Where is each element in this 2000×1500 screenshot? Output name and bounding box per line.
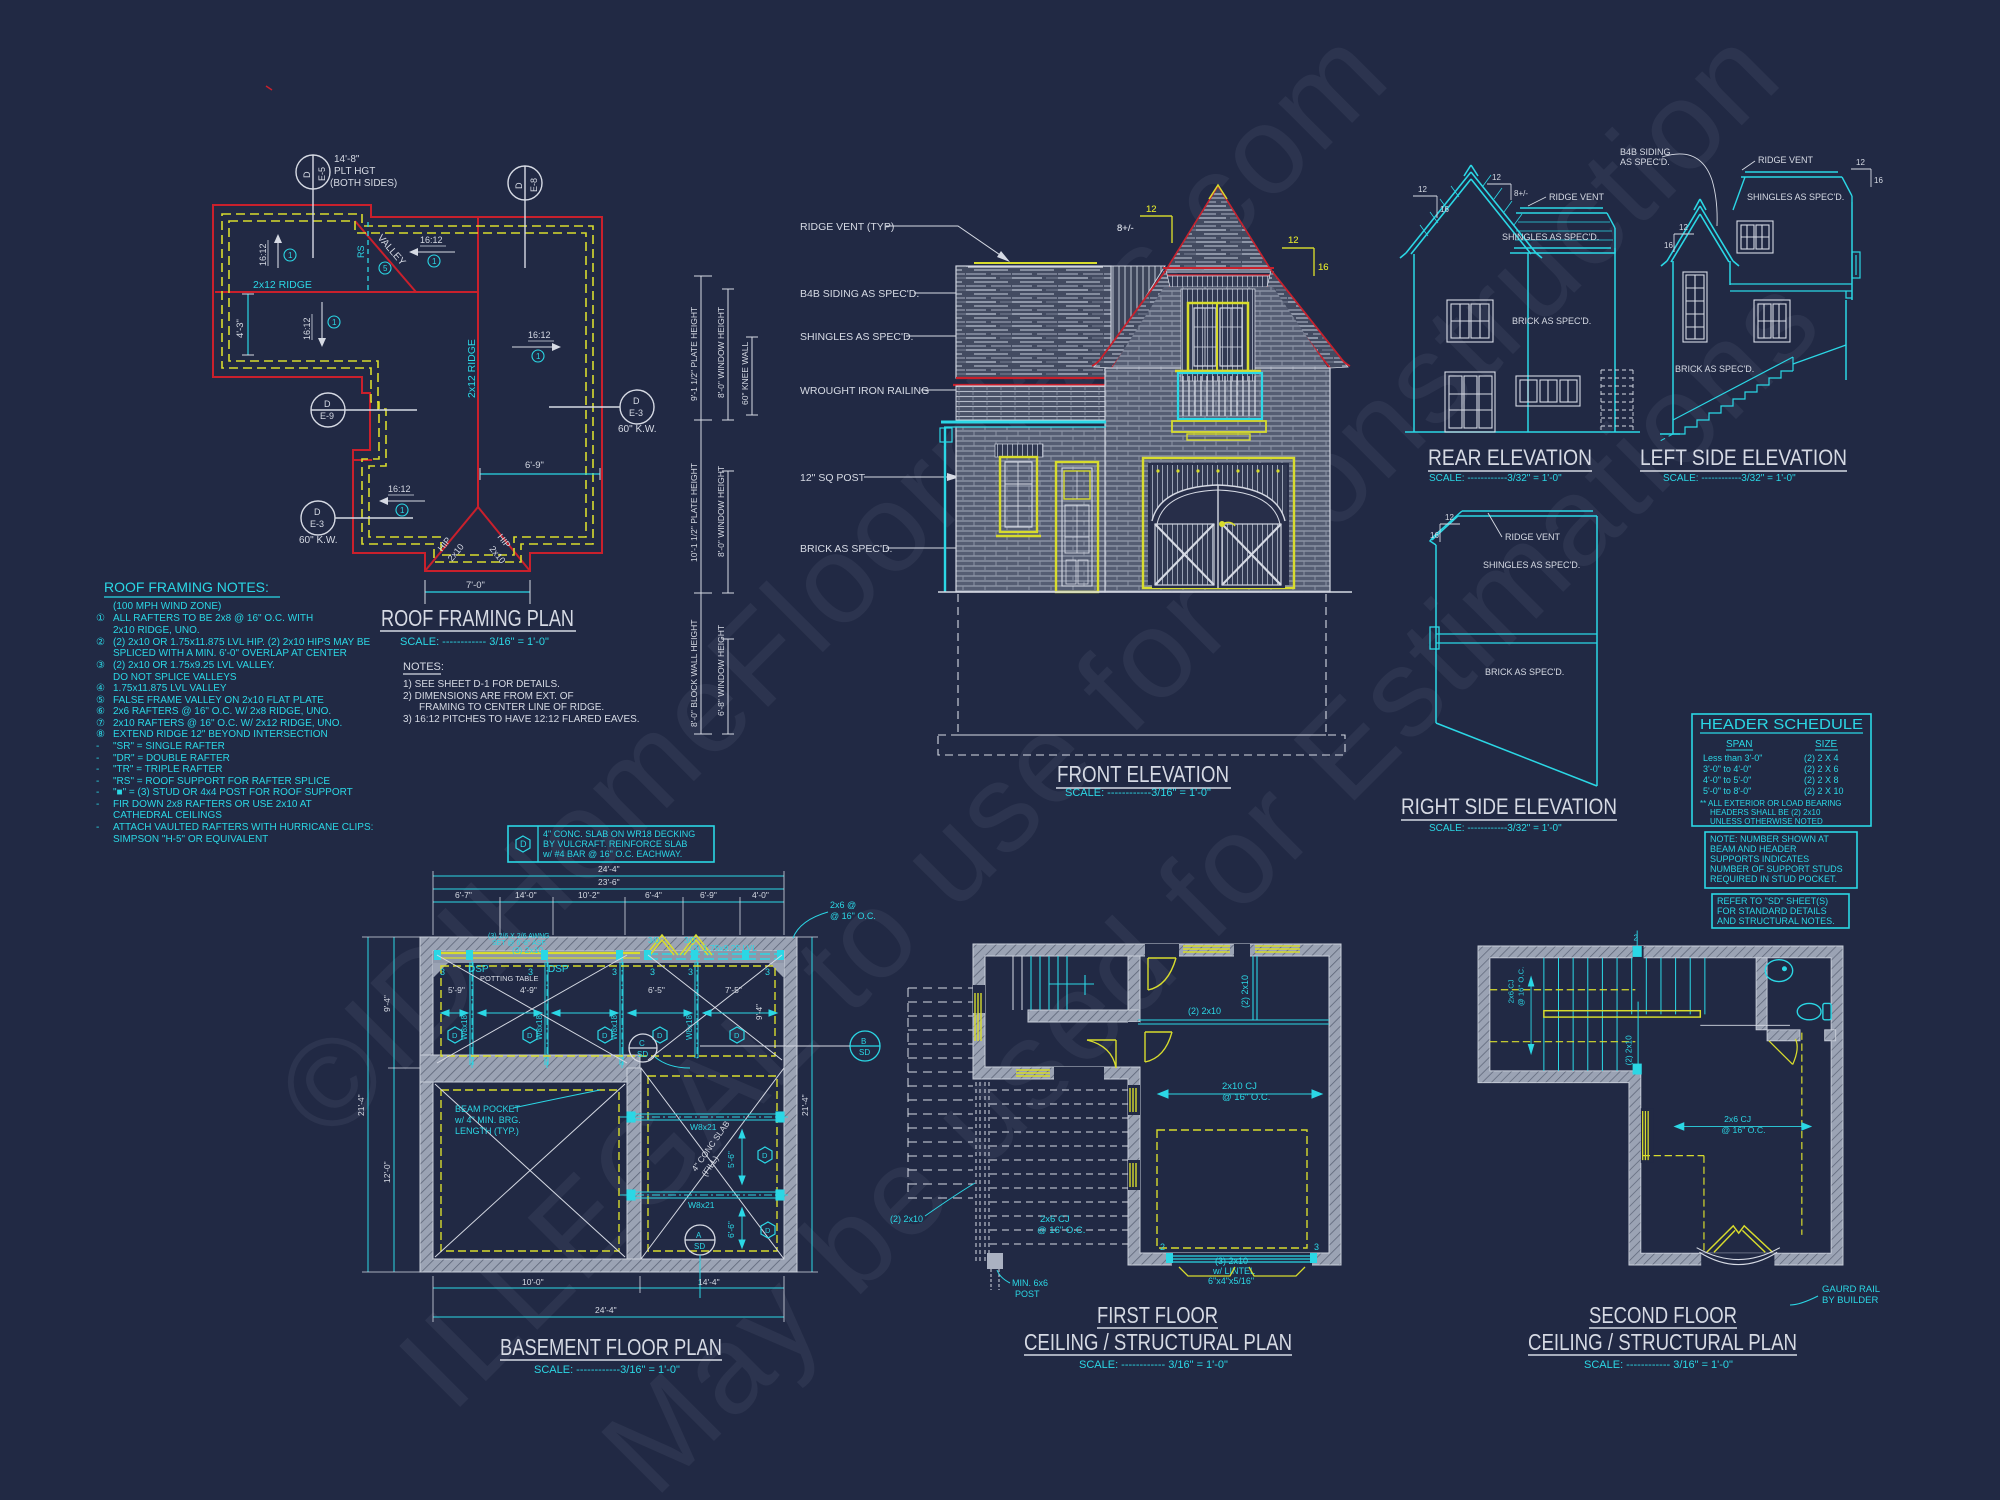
svg-text:D: D [657, 1031, 663, 1040]
svg-text:1.75x11.875 LVL VALLEY: 1.75x11.875 LVL VALLEY [113, 683, 227, 694]
svg-text:LEFT SIDE ELEVATION: LEFT SIDE ELEVATION [1640, 445, 1847, 470]
svg-text:SCALE: ------------ 3/16" = 1': SCALE: ------------ 3/16" = 1'-0" [1584, 1359, 1733, 1371]
svg-text:PLT HGT: PLT HGT [334, 166, 375, 177]
svg-text:SIMPSON "H-5" OR EQUIVALENT: SIMPSON "H-5" OR EQUIVALENT [113, 834, 268, 845]
svg-text:(2) 2x10 OR 1.75x11.875 LVL HI: (2) 2x10 OR 1.75x11.875 LVL HIP. (2) 2x1… [113, 637, 370, 648]
svg-text:8'-0" BLOCK WALL HEIGHT: 8'-0" BLOCK WALL HEIGHT [689, 620, 699, 727]
svg-text:2x6 CJ: 2x6 CJ [1724, 1114, 1751, 1124]
svg-text:60" KNEE WALL: 60" KNEE WALL [740, 342, 750, 405]
svg-text:5'-9": 5'-9" [448, 985, 465, 995]
svg-text:"TR" = TRIPLE RAFTER: "TR" = TRIPLE RAFTER [113, 764, 222, 775]
svg-text:3: 3 [440, 967, 445, 977]
svg-text:21'-4": 21'-4" [356, 1094, 366, 1116]
svg-text:3: 3 [650, 967, 655, 977]
svg-text:16:12: 16:12 [258, 243, 268, 266]
svg-text:(2) 2 X 6: (2) 2 X 6 [1804, 764, 1839, 774]
svg-text:-: - [96, 764, 99, 775]
svg-text:W8x18: W8x18 [610, 1015, 619, 1040]
svg-text:E-9: E-9 [320, 411, 334, 421]
svg-text:-: - [96, 741, 99, 752]
svg-text:2x12 RIDGE: 2x12 RIDGE [253, 279, 312, 291]
svg-text:(100 MPH WIND ZONE): (100 MPH WIND ZONE) [113, 601, 221, 612]
svg-text:B4B SIDING: B4B SIDING [1620, 147, 1671, 157]
svg-text:(3) 2/6 X 2/6 AWNG: (3) 2/6 X 2/6 AWNG [488, 933, 550, 940]
svg-text:SCALE: ------------3/16" = 1'-: SCALE: ------------3/16" = 1'-0" [1065, 787, 1211, 799]
svg-text:12: 12 [1418, 185, 1427, 194]
svg-text:AND STRUCTURAL NOTES.: AND STRUCTURAL NOTES. [1717, 916, 1835, 926]
svg-text:C: C [639, 1039, 645, 1048]
svg-text:DO NOT SPLICE VALLEYS: DO NOT SPLICE VALLEYS [113, 672, 237, 683]
svg-text:NOTES:: NOTES: [403, 661, 444, 673]
svg-text:8+/-: 8+/- [1514, 189, 1528, 198]
svg-text:HEADER SCHEDULE: HEADER SCHEDULE [1700, 717, 1863, 733]
svg-text:6'-9": 6'-9" [525, 460, 544, 471]
svg-text:B: B [861, 1037, 866, 1046]
svg-text:ALL RAFTERS TO BE 2x8 @ 16" O.: ALL RAFTERS TO BE 2x8 @ 16" O.C. WITH [113, 613, 313, 624]
svg-text:7'-0": 7'-0" [466, 580, 485, 591]
svg-text:SHINGLES AS SPEC'D.: SHINGLES AS SPEC'D. [1502, 232, 1599, 242]
svg-text:1) SEE SHEET D-1 FOR DETAILS.: 1) SEE SHEET D-1 FOR DETAILS. [403, 679, 560, 690]
svg-text:D: D [765, 1226, 771, 1235]
svg-text:SCALE: ------------ 3/16" = 1': SCALE: ------------ 3/16" = 1'-0" [400, 636, 549, 648]
svg-text:10'-1 1/2" PLATE HEIGHT: 10'-1 1/2" PLATE HEIGHT [689, 463, 699, 562]
svg-text:SUPPORTS INDICATES: SUPPORTS INDICATES [1710, 854, 1809, 864]
svg-text:6'-5": 6'-5" [648, 985, 665, 995]
svg-text:REAR ELEVATION: REAR ELEVATION [1428, 445, 1592, 470]
svg-text:BY BUILDER: BY BUILDER [1822, 1295, 1878, 1306]
svg-text:3: 3 [688, 967, 693, 977]
svg-text:(2) 2 X 4: (2) 2 X 4 [1804, 753, 1839, 763]
svg-text:3: 3 [1314, 1242, 1319, 1252]
svg-text:3) 16:12 PITCHES TO HAVE 12:1: 3) 16:12 PITCHES TO HAVE 12:12 FLARED EA… [403, 714, 640, 725]
svg-text:E-8: E-8 [529, 178, 539, 192]
svg-text:BY VULCRAFT. REINFORCE SLAB: BY VULCRAFT. REINFORCE SLAB [543, 839, 687, 849]
svg-text:ROOF FRAMING NOTES:: ROOF FRAMING NOTES: [104, 579, 269, 595]
svg-text:SCALE: ------------ 3/16" = 1': SCALE: ------------ 3/16" = 1'-0" [1079, 1359, 1228, 1371]
svg-text:w/ 4" MIN. BRG.: w/ 4" MIN. BRG. [454, 1115, 521, 1125]
svg-text:12: 12 [1856, 158, 1865, 167]
svg-text:LENGTH (TYP.): LENGTH (TYP.) [455, 1126, 519, 1136]
svg-text:SECOND FLOOR: SECOND FLOOR [1589, 1302, 1737, 1328]
svg-text:⑦: ⑦ [96, 718, 105, 729]
svg-text:-: - [96, 799, 99, 810]
svg-text:ATTACH VAULTED RAFTERS WITH HU: ATTACH VAULTED RAFTERS WITH HURRICANE CL… [113, 822, 373, 833]
svg-text:ROOF FRAMING PLAN: ROOF FRAMING PLAN [381, 605, 574, 631]
svg-text:RIGHT SIDE ELEVATION: RIGHT SIDE ELEVATION [1401, 794, 1617, 819]
svg-text:W8x21: W8x21 [688, 1200, 715, 1210]
svg-text:W8x18: W8x18 [535, 1015, 544, 1040]
svg-text:6'-4": 6'-4" [645, 890, 662, 900]
svg-text:24'-4": 24'-4" [598, 864, 620, 874]
svg-text:SPAN: SPAN [1726, 739, 1753, 750]
svg-text:SD: SD [637, 1050, 648, 1059]
svg-text:A: A [696, 1231, 702, 1240]
svg-text:REQUIRED IN STUD POCKET.: REQUIRED IN STUD POCKET. [1710, 874, 1837, 884]
svg-text:BEAM AND HEADER: BEAM AND HEADER [1710, 844, 1797, 854]
svg-text:RIDGE VENT: RIDGE VENT [1505, 532, 1561, 542]
svg-text:8+/-: 8+/- [1117, 223, 1134, 234]
svg-text:E-3: E-3 [629, 408, 643, 418]
svg-text:4'-3": 4'-3" [235, 319, 246, 338]
svg-text:6"x4"x5/16": 6"x4"x5/16" [1208, 1276, 1254, 1286]
svg-text:1: 1 [400, 506, 405, 515]
svg-text:FRONT ELEVATION: FRONT ELEVATION [1057, 761, 1229, 787]
svg-text:16:12: 16:12 [420, 235, 443, 245]
svg-text:24'-4": 24'-4" [595, 1305, 617, 1315]
svg-text:1: 1 [332, 318, 337, 327]
svg-text:BASEMENT FLOOR PLAN: BASEMENT FLOOR PLAN [500, 1334, 722, 1360]
svg-text:MIN. 6x6: MIN. 6x6 [1012, 1278, 1048, 1288]
svg-text:16: 16 [1440, 205, 1449, 214]
svg-text:16: 16 [1318, 262, 1329, 273]
svg-text:3: 3 [765, 967, 770, 977]
svg-text:SCALE: ------------3/32" = 1'-: SCALE: ------------3/32" = 1'-0" [1429, 473, 1562, 484]
svg-text:"RS" = ROOF SUPPORT FOR RAFT: "RS" = ROOF SUPPORT FOR RAFTER SPLICE [113, 776, 330, 787]
svg-text:EXTEND RIDGE 12" BEYOND INTERS: EXTEND RIDGE 12" BEYOND INTERSECTION [113, 729, 328, 740]
svg-text:B4B SIDING AS SPEC'D.: B4B SIDING AS SPEC'D. [800, 288, 919, 300]
svg-text:FIRST FLOOR: FIRST FLOOR [1097, 1302, 1218, 1328]
svg-text:5: 5 [383, 264, 388, 273]
svg-text:16:12: 16:12 [302, 317, 312, 340]
svg-text:2x6 CJ: 2x6 CJ [1507, 979, 1516, 1003]
svg-text:10'-2": 10'-2" [578, 890, 600, 900]
svg-text:10'-0": 10'-0" [522, 1277, 544, 1287]
svg-text:"DR" = DOUBLE RAFTER: "DR" = DOUBLE RAFTER [113, 753, 230, 764]
svg-text:BRICK AS SPEC'D.: BRICK AS SPEC'D. [1675, 364, 1754, 374]
svg-text:SIZE: SIZE [1815, 739, 1838, 750]
svg-text:(2) 2x10 OR 1.75x9.25 LVL VALL: (2) 2x10 OR 1.75x9.25 LVL VALLEY. [113, 660, 275, 671]
svg-text:SCALE: ------------3/16" = 1'-: SCALE: ------------3/16" = 1'-0" [534, 1364, 680, 1376]
svg-text:(2) 2x10: (2) 2x10 [1188, 1006, 1221, 1016]
svg-text:@ 16" O.C.: @ 16" O.C. [1517, 967, 1526, 1006]
svg-text:WROUGHT IRON RAILING: WROUGHT IRON RAILING [800, 385, 929, 397]
svg-text:9'-4": 9'-4" [382, 995, 392, 1012]
svg-text:(BOTH SIDES): (BOTH SIDES) [330, 178, 397, 189]
svg-text:FOR STANDARD DETAILS: FOR STANDARD DETAILS [1717, 906, 1827, 916]
svg-text:POTTING TABLE: POTTING TABLE [480, 974, 538, 983]
svg-text:E-3: E-3 [310, 519, 324, 529]
svg-text:-: - [96, 776, 99, 787]
svg-text:(2) 2 X 8: (2) 2 X 8 [1804, 775, 1839, 785]
svg-text:23'-6": 23'-6" [598, 877, 620, 887]
svg-text:9'-1 1/2" PLATE HEIGHT: 9'-1 1/2" PLATE HEIGHT [689, 307, 699, 401]
svg-text:2) DIMENSIONS ARE FROM EXT. O: 2) DIMENSIONS ARE FROM EXT. OF [403, 691, 574, 702]
svg-text:** ALL EXTERIOR OR LOAD BEARI: ** ALL EXTERIOR OR LOAD BEARING [1700, 799, 1842, 808]
svg-text:1: 1 [432, 257, 437, 266]
svg-text:POST: POST [1015, 1289, 1040, 1299]
svg-text:BRICK AS SPEC'D.: BRICK AS SPEC'D. [800, 543, 892, 555]
svg-text:HEADERS SHALL BE (2) 2x10: HEADERS SHALL BE (2) 2x10 [1710, 808, 1821, 817]
svg-text:D: D [324, 399, 331, 409]
svg-text:⑧: ⑧ [96, 729, 105, 740]
svg-text:D: D [314, 507, 321, 517]
svg-text:RS: RS [356, 245, 366, 258]
svg-text:6'-7": 6'-7" [455, 890, 472, 900]
svg-text:12: 12 [1679, 223, 1688, 232]
svg-text:5'-0" to 8'-0": 5'-0" to 8'-0" [1703, 786, 1751, 796]
svg-text:Less than 3'-0": Less than 3'-0" [1703, 753, 1762, 763]
svg-text:④: ④ [96, 683, 105, 694]
svg-text:D: D [452, 1031, 458, 1040]
svg-text:-: - [96, 753, 99, 764]
svg-text:16: 16 [1430, 531, 1439, 540]
svg-text:60" K.W.: 60" K.W. [618, 424, 657, 435]
svg-text:REFER TO "SD" SHEET(S): REFER TO "SD" SHEET(S) [1717, 896, 1828, 906]
svg-text:"SR" = SINGLE RAFTER: "SR" = SINGLE RAFTER [113, 741, 225, 752]
svg-text:3'-0" to 4'-0": 3'-0" to 4'-0" [1703, 764, 1751, 774]
svg-text:6'-9": 6'-9" [700, 890, 717, 900]
svg-text:2x6 RAFTERS @ 16" O.C. W/ 2x8: 2x6 RAFTERS @ 16" O.C. W/ 2x8 RIDGE, UNO… [113, 706, 331, 717]
svg-text:16:12: 16:12 [528, 330, 551, 340]
svg-text:(2) 2x10: (2) 2x10 [1625, 1035, 1634, 1065]
svg-text:DSP: DSP [548, 964, 569, 975]
svg-text:②: ② [96, 637, 105, 648]
svg-text:12: 12 [1146, 204, 1157, 215]
svg-text:E-5: E-5 [317, 167, 327, 181]
svg-text:(3) 2x10: (3) 2x10 [512, 945, 543, 955]
svg-text:-: - [96, 787, 99, 798]
svg-text:D: D [602, 1031, 608, 1040]
svg-text:SD: SD [859, 1048, 870, 1057]
svg-text:⑤: ⑤ [96, 695, 105, 706]
svg-text:14'-8": 14'-8" [334, 154, 360, 165]
svg-text:FALSE FRAME VALLEY ON 2x10 FLA: FALSE FRAME VALLEY ON 2x10 FLAT PLATE [113, 695, 324, 706]
svg-text:FRAMING TO CENTER LINE OF RIDG: FRAMING TO CENTER LINE OF RIDGE. [419, 702, 604, 713]
svg-text:(3) 1.75x9.25 LVL: (3) 1.75x9.25 LVL [690, 943, 757, 953]
svg-text:(3) 2x10: (3) 2x10 [1215, 1256, 1248, 1266]
svg-text:2x10 RIDGE, UNO.: 2x10 RIDGE, UNO. [113, 625, 200, 636]
svg-text:D: D [520, 839, 527, 849]
svg-text:CEILING / STRUCTURAL PLAN: CEILING / STRUCTURAL PLAN [1024, 1329, 1292, 1355]
svg-text:3: 3 [612, 967, 617, 977]
svg-text:2x10 CJ: 2x10 CJ [1222, 1081, 1257, 1092]
svg-text:14'-4": 14'-4" [698, 1277, 720, 1287]
svg-text:4'-9": 4'-9" [520, 985, 537, 995]
svg-text:AS SPEC'D.: AS SPEC'D. [1620, 157, 1670, 167]
svg-text:SHINGLES AS SPEC'D.: SHINGLES AS SPEC'D. [1747, 192, 1844, 202]
svg-text:6'-6": 6'-6" [726, 1221, 736, 1238]
svg-text:4'-0": 4'-0" [752, 890, 769, 900]
svg-text:SD: SD [694, 1242, 705, 1251]
svg-text:UNLESS OTHERWISE NOTED: UNLESS OTHERWISE NOTED [1710, 817, 1823, 826]
svg-text:1: 1 [536, 352, 541, 361]
svg-text:BRICK AS SPEC'D.: BRICK AS SPEC'D. [1485, 667, 1564, 677]
svg-text:16: 16 [1874, 176, 1883, 185]
svg-text:14'-0": 14'-0" [515, 890, 537, 900]
svg-text:12: 12 [1288, 235, 1299, 246]
svg-text:4'-0" to 5'-0": 4'-0" to 5'-0" [1703, 775, 1751, 785]
svg-text:2x6 @: 2x6 @ [830, 900, 856, 910]
svg-text:SHINGLES AS SPEC'D.: SHINGLES AS SPEC'D. [800, 331, 913, 343]
svg-text:⑥: ⑥ [96, 706, 105, 717]
svg-text:W8x21: W8x21 [690, 1122, 717, 1132]
svg-text:12: 12 [1492, 173, 1501, 182]
svg-text:1: 1 [288, 251, 293, 260]
svg-text:NOTE: NUMBER SHOWN AT: NOTE: NUMBER SHOWN AT [1710, 834, 1829, 844]
svg-text:"■" = (3) STUD OR 4x4 POST: "■" = (3) STUD OR 4x4 POST FOR ROOF SUPP… [113, 787, 353, 798]
svg-text:W8x18: W8x18 [460, 1015, 469, 1040]
svg-text:16:12: 16:12 [388, 484, 411, 494]
svg-text:RIDGE VENT: RIDGE VENT [1549, 192, 1605, 202]
svg-text:D: D [527, 1031, 533, 1040]
svg-text:(2) 2 X 10: (2) 2 X 10 [1804, 786, 1844, 796]
svg-text:8'-0" WINDOW HEIGHT: 8'-0" WINDOW HEIGHT [716, 466, 726, 557]
svg-text:12" SQ POST: 12" SQ POST [800, 472, 866, 484]
svg-text:2: 2 [1634, 934, 1639, 943]
svg-text:60" K.W.: 60" K.W. [299, 535, 338, 546]
svg-text:2x10 RAFTERS @ 16" O.C. W/ 2x1: 2x10 RAFTERS @ 16" O.C. W/ 2x12 RIDGE, U… [113, 718, 342, 729]
svg-text:SPLICED WITH A MIN. 6'-0" OVER: SPLICED WITH A MIN. 6'-0" OVERLAP AT CEN… [113, 648, 347, 659]
svg-text:D: D [302, 171, 312, 178]
svg-text:①: ① [96, 613, 105, 624]
svg-text:D: D [633, 396, 640, 406]
svg-text:16: 16 [1664, 241, 1673, 250]
svg-text:7'-5": 7'-5" [725, 985, 742, 995]
svg-text:(2) 2x10: (2) 2x10 [1240, 975, 1250, 1008]
svg-text:3/0: 3/0 [684, 936, 696, 945]
svg-text:BRICK AS SPEC'D.: BRICK AS SPEC'D. [1512, 316, 1591, 326]
svg-text:D: D [734, 1031, 740, 1040]
svg-text:SHINGLES AS SPEC'D.: SHINGLES AS SPEC'D. [1483, 560, 1580, 570]
svg-text:RIDGE VENT (TYP): RIDGE VENT (TYP) [800, 221, 894, 233]
svg-text:@ 16" O.C.: @ 16" O.C. [830, 911, 876, 921]
svg-text:12'-0": 12'-0" [382, 1161, 392, 1183]
svg-text:21'-4": 21'-4" [800, 1094, 810, 1116]
svg-text:2: 2 [1160, 1242, 1165, 1252]
svg-text:SCALE: ------------3/32" = 1'-: SCALE: ------------3/32" = 1'-0" [1429, 823, 1562, 834]
svg-text:2x12 RIDGE: 2x12 RIDGE [466, 339, 478, 398]
svg-text:GAURD RAIL: GAURD RAIL [1822, 1284, 1880, 1295]
svg-text:D: D [762, 1151, 768, 1160]
svg-text:9'-4": 9'-4" [755, 1004, 764, 1020]
svg-text:2x6 CJ: 2x6 CJ [1040, 1214, 1070, 1225]
svg-text:③: ③ [96, 660, 105, 671]
svg-text:8'-0" WINDOW HEIGHT: 8'-0" WINDOW HEIGHT [716, 307, 726, 398]
svg-text:RIDGE VENT: RIDGE VENT [1758, 155, 1814, 165]
svg-text:@ 16" O.C.: @ 16" O.C. [1037, 1225, 1085, 1236]
svg-text:(2) 2x10: (2) 2x10 [890, 1214, 923, 1224]
svg-text:w/ #4 BAR @ 16" O.C. EACHWAY.: w/ #4 BAR @ 16" O.C. EACHWAY. [542, 849, 682, 859]
svg-text:-: - [96, 822, 99, 833]
svg-text:6'-8" WINDOW HEIGHT: 6'-8" WINDOW HEIGHT [716, 625, 726, 716]
svg-text:3/0: 3/0 [648, 936, 660, 945]
svg-text:NUMBER OF SUPPORT STUDS: NUMBER OF SUPPORT STUDS [1710, 864, 1843, 874]
svg-text:5'-6": 5'-6" [726, 1151, 736, 1168]
svg-text:D: D [514, 182, 524, 189]
svg-text:12: 12 [1445, 513, 1454, 522]
svg-text:BEAM POCKET: BEAM POCKET [455, 1104, 521, 1114]
svg-text:CEILING / STRUCTURAL PLAN: CEILING / STRUCTURAL PLAN [1528, 1329, 1797, 1355]
svg-text:SCALE: ------------3/32" = 1'-: SCALE: ------------3/32" = 1'-0" [1663, 473, 1796, 484]
svg-text:FIR DOWN 2x8 RAFTERS OR USE 2x: FIR DOWN 2x8 RAFTERS OR USE 2x10 AT [113, 799, 312, 810]
svg-text:CATHEDRAL CEILINGS: CATHEDRAL CEILINGS [113, 810, 222, 821]
svg-text:4" CONC. SLAB ON WR18 DECKING: 4" CONC. SLAB ON WR18 DECKING [543, 829, 695, 839]
